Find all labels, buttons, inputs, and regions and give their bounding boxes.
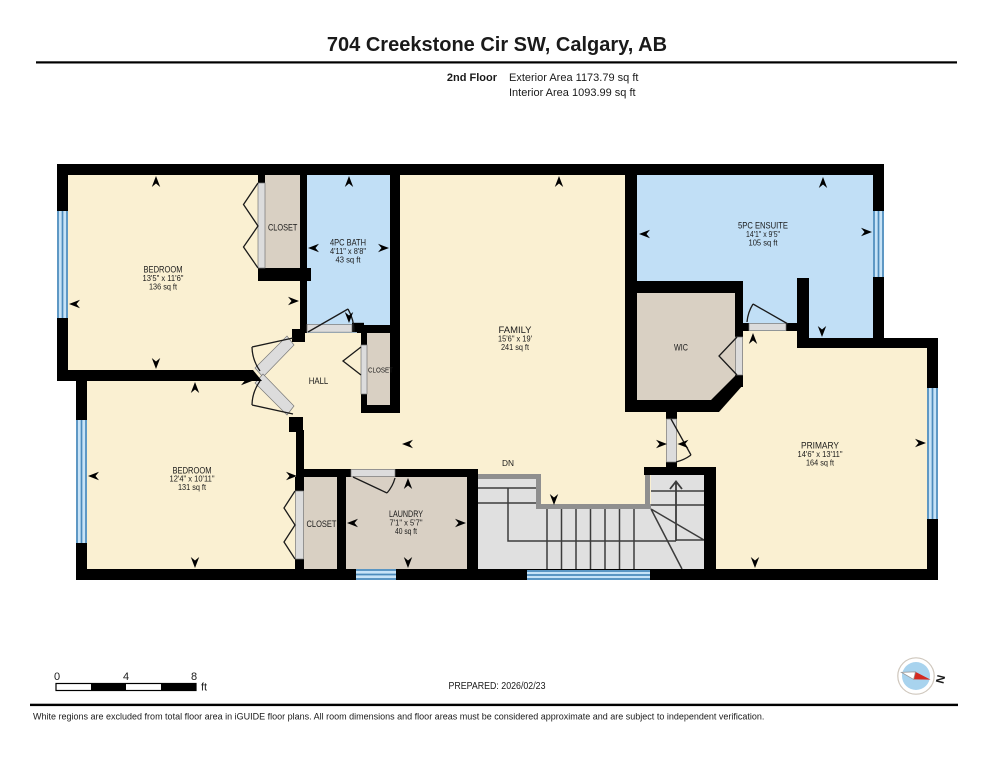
- svg-text:HALL: HALL: [309, 376, 329, 386]
- svg-text:PREPARED: 2026/02/23: PREPARED: 2026/02/23: [449, 681, 546, 692]
- svg-text:CLOSET: CLOSET: [268, 223, 298, 233]
- svg-text:8: 8: [191, 671, 197, 683]
- svg-text:43 sq ft: 43 sq ft: [336, 255, 362, 264]
- svg-text:BEDROOM: BEDROOM: [144, 265, 183, 275]
- svg-text:0: 0: [54, 671, 60, 683]
- svg-text:40 sq ft: 40 sq ft: [395, 527, 418, 536]
- svg-text:241 sq ft: 241 sq ft: [501, 343, 530, 352]
- svg-text:DN: DN: [502, 458, 514, 468]
- svg-text:2nd Floor: 2nd Floor: [447, 72, 498, 84]
- svg-text:CLOSET: CLOSET: [368, 367, 394, 374]
- svg-text:CLOSET: CLOSET: [307, 519, 337, 529]
- svg-text:Interior Area 1093.99 sq ft: Interior Area 1093.99 sq ft: [509, 87, 636, 99]
- svg-text:131 sq ft: 131 sq ft: [178, 483, 207, 492]
- svg-text:Exterior Area 1173.79 sq ft: Exterior Area 1173.79 sq ft: [509, 72, 638, 84]
- svg-text:105 sq ft: 105 sq ft: [749, 239, 779, 248]
- svg-text:5PC ENSUITE: 5PC ENSUITE: [738, 220, 788, 230]
- svg-text:136 sq ft: 136 sq ft: [149, 282, 178, 291]
- svg-text:FAMILY: FAMILY: [499, 325, 532, 335]
- svg-text:164 sq ft: 164 sq ft: [806, 459, 835, 468]
- svg-text:ft: ft: [201, 682, 207, 694]
- svg-text:4PC BATH: 4PC BATH: [330, 238, 366, 248]
- svg-text:PRIMARY: PRIMARY: [801, 441, 839, 451]
- svg-text:White regions are excluded fro: White regions are excluded from total fl…: [33, 712, 764, 722]
- svg-text:704 Creekstone Cir SW, Calgary: 704 Creekstone Cir SW, Calgary, AB: [327, 34, 667, 56]
- svg-text:4: 4: [123, 671, 129, 683]
- svg-text:WIC: WIC: [674, 342, 688, 352]
